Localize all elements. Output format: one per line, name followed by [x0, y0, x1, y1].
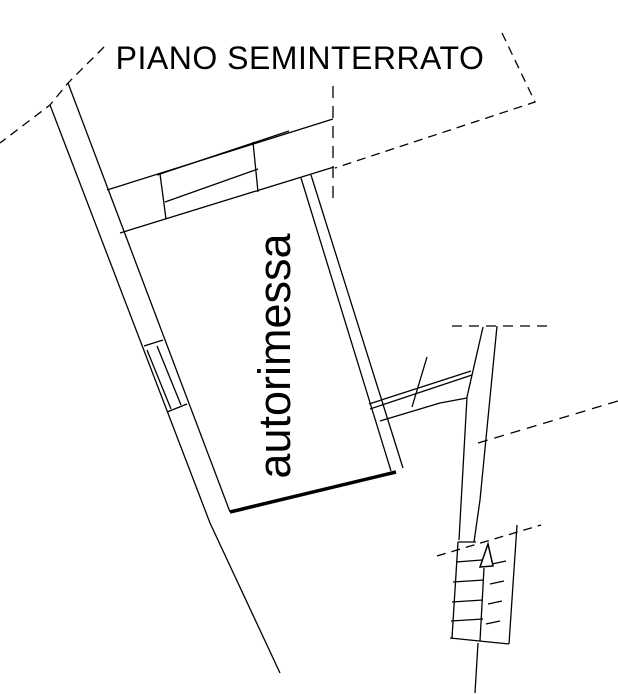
floor-plan-drawing: PIANO SEMINTERRATO autorimessa: [0, 0, 618, 694]
stairs-direction-arrow-icon: [480, 544, 493, 567]
room-label-autorimessa: autorimessa: [249, 232, 300, 478]
plan-lines: [0, 33, 618, 693]
plan-title: PIANO SEMINTERRATO: [116, 40, 485, 76]
floor-plan-page: PIANO SEMINTERRATO autorimessa: [0, 0, 618, 694]
